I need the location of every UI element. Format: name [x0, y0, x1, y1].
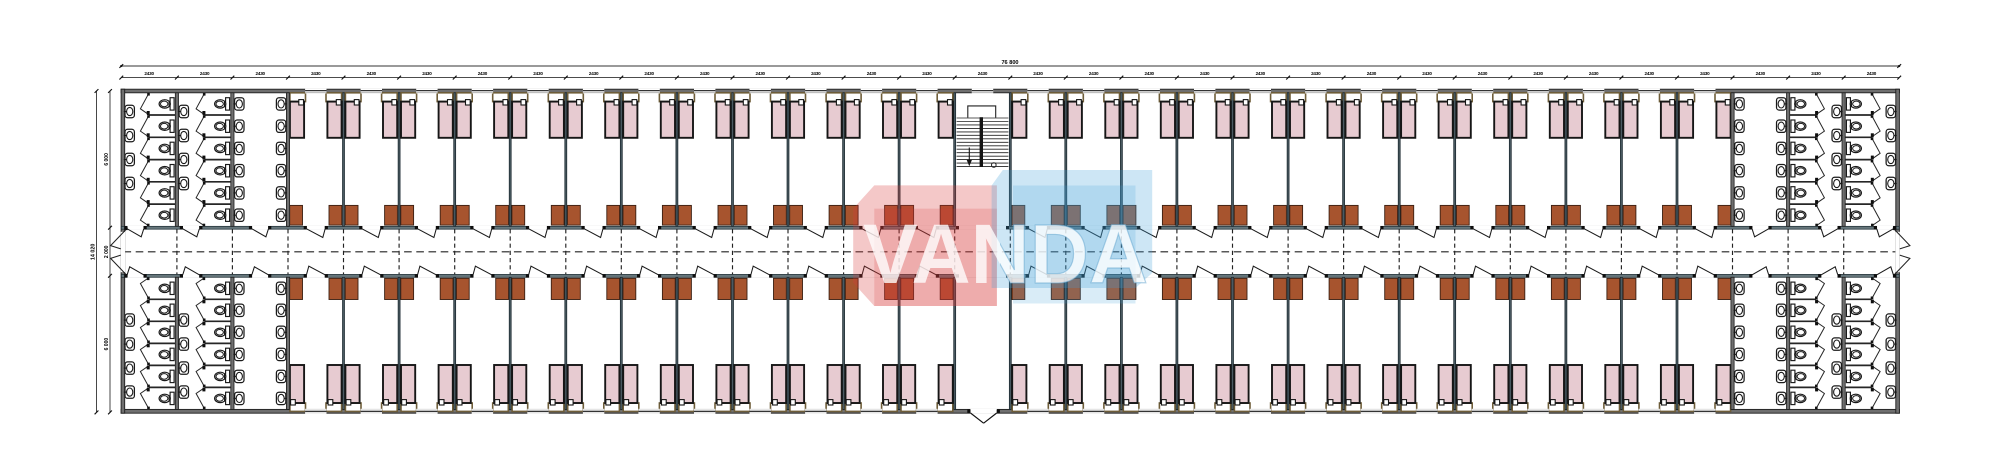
svg-text:2430: 2430 [311, 71, 321, 76]
svg-text:2430: 2430 [1033, 71, 1043, 76]
svg-text:2430: 2430 [1589, 71, 1599, 76]
svg-text:2430: 2430 [1867, 71, 1877, 76]
svg-text:76 800: 76 800 [1001, 60, 1018, 66]
svg-text:2430: 2430 [422, 71, 432, 76]
svg-text:2430: 2430 [1367, 71, 1377, 76]
svg-text:2430: 2430 [1422, 71, 1432, 76]
svg-text:2430: 2430 [1811, 71, 1821, 76]
svg-text:2430: 2430 [1200, 71, 1210, 76]
svg-text:2430: 2430 [200, 71, 210, 76]
svg-text:14 020: 14 020 [91, 244, 97, 260]
svg-text:2430: 2430 [1478, 71, 1488, 76]
svg-text:2430: 2430 [811, 71, 821, 76]
svg-text:2430: 2430 [1644, 71, 1654, 76]
svg-text:2430: 2430 [589, 71, 599, 76]
svg-text:2430: 2430 [1311, 71, 1321, 76]
svg-text:2430: 2430 [978, 71, 988, 76]
svg-text:2430: 2430 [755, 71, 765, 76]
svg-text:2430: 2430 [700, 71, 710, 76]
svg-text:2430: 2430 [533, 71, 543, 76]
svg-text:6 000: 6 000 [104, 153, 110, 166]
svg-text:2430: 2430 [1533, 71, 1543, 76]
svg-text:2430: 2430 [1256, 71, 1266, 76]
svg-text:2430: 2430 [1700, 71, 1710, 76]
svg-text:2430: 2430 [478, 71, 488, 76]
svg-text:2430: 2430 [867, 71, 877, 76]
svg-text:2 000: 2 000 [104, 245, 110, 258]
svg-text:2430: 2430 [144, 71, 154, 76]
svg-text:6 000: 6 000 [104, 338, 110, 351]
svg-text:2430: 2430 [644, 71, 654, 76]
svg-text:2430: 2430 [1089, 71, 1099, 76]
svg-text:2430: 2430 [1144, 71, 1154, 76]
svg-text:2430: 2430 [922, 71, 932, 76]
svg-text:2430: 2430 [1756, 71, 1766, 76]
svg-text:2430: 2430 [367, 71, 377, 76]
svg-text:2430: 2430 [255, 71, 265, 76]
